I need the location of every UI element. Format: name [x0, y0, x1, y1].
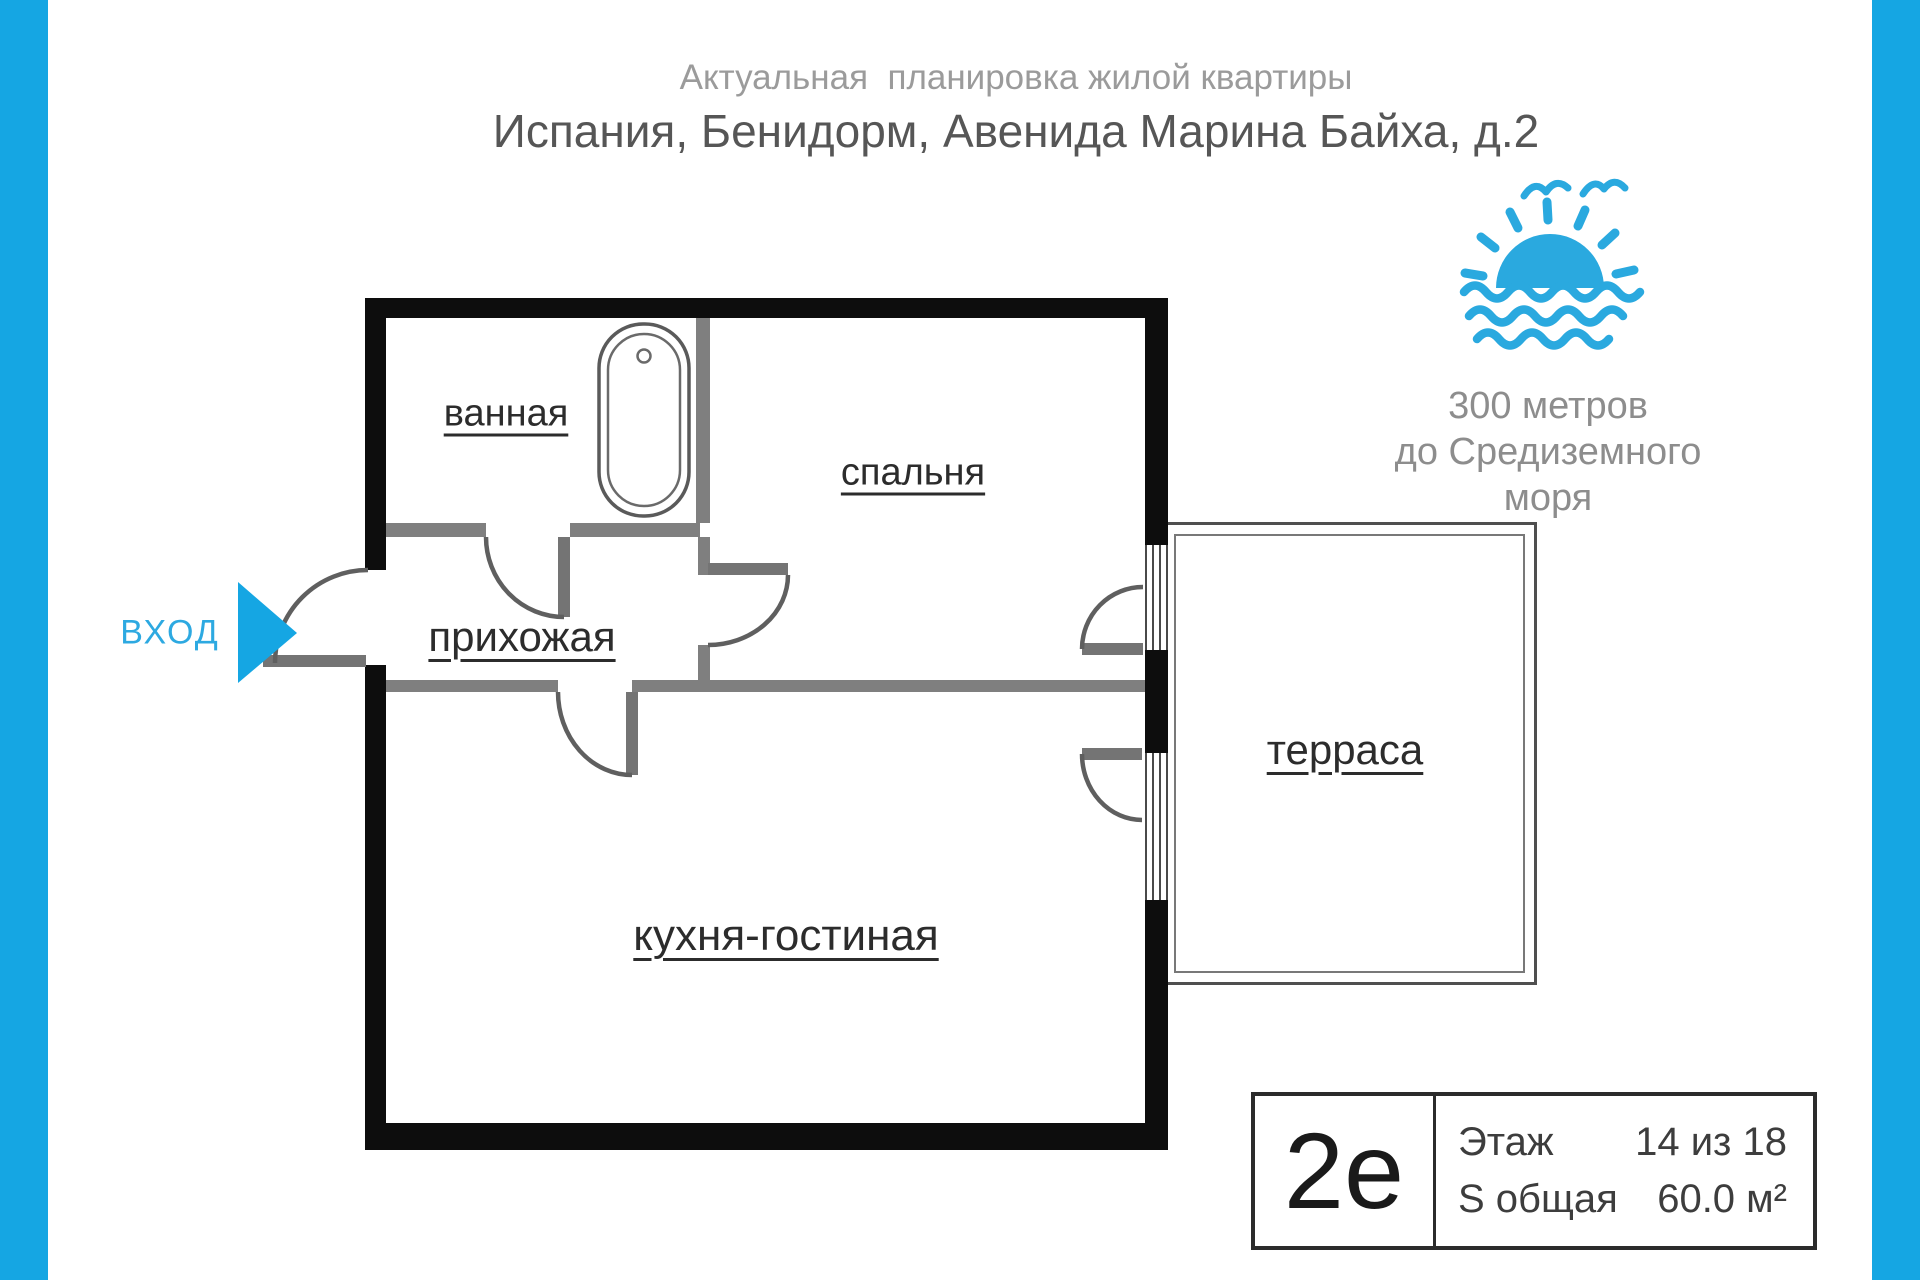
page-subtitle: Актуальная планировка жилой квартиры — [680, 58, 1353, 98]
wall-right-middle — [1145, 650, 1168, 753]
wall-right-upper — [1145, 298, 1168, 545]
entrance-door-leaf — [263, 655, 366, 667]
sun-over-sea-icon — [1464, 182, 1640, 345]
right-accent-bar — [1872, 0, 1920, 1280]
seaside-distance-text: 300 метров до Средиземного моря — [1362, 383, 1734, 521]
bathtub-icon — [599, 324, 689, 516]
bedroom-door-arc — [708, 575, 788, 645]
kitchen-window — [1145, 753, 1168, 900]
kitchen-door-leaf — [626, 692, 638, 775]
area-label: S общая — [1458, 1177, 1618, 1222]
floorplan-page: Актуальная планировка жилой квартиры Исп… — [0, 0, 1920, 1280]
bedroom-wall-lower-segment — [698, 645, 710, 680]
bathroom-wall-right-segment — [570, 523, 700, 537]
kitchen-door-arc — [558, 692, 632, 775]
bathroom-label: ванная — [444, 393, 569, 436]
bathroom-door-arc — [486, 537, 564, 617]
area-value: 60.0 м² — [1657, 1177, 1787, 1222]
entrance-door-arc — [275, 570, 368, 663]
plan-linework — [0, 0, 1920, 1280]
bedroom-window — [1145, 545, 1168, 650]
bedroom-door-leaf — [708, 563, 788, 575]
left-accent-bar — [0, 0, 48, 1280]
wall-left-lower — [365, 665, 386, 1150]
page-title: Испания, Бенидорм, Авенида Марина Байха,… — [493, 104, 1539, 158]
terrace-kitchen-door-leaf — [1082, 748, 1142, 760]
apartment-details-cell: Этаж 14 из 18 S общая 60.0 м² — [1436, 1096, 1813, 1246]
floor-label: Этаж — [1458, 1120, 1554, 1165]
wall-top — [365, 298, 1168, 318]
seaside-line1: 300 метров — [1448, 385, 1648, 427]
bedroom-label: спальня — [841, 452, 985, 495]
floor-value: 14 из 18 — [1635, 1120, 1787, 1165]
hallway-kitchen-wall-left — [386, 680, 558, 692]
terrace-bedroom-door-leaf — [1082, 643, 1143, 655]
terrace-bedroom-door-arc — [1082, 587, 1143, 649]
seaside-line2: до Средиземного моря — [1395, 431, 1702, 519]
kitchen-living-label: кухня-гостиная — [633, 911, 938, 961]
entrance-arrow-icon — [238, 582, 297, 683]
area-row: S общая 60.0 м² — [1458, 1177, 1787, 1222]
wall-left-upper — [365, 298, 386, 570]
hallway-label: прихожая — [428, 613, 615, 661]
apartment-type-cell: 2е — [1255, 1096, 1436, 1246]
apartment-type: 2е — [1284, 1117, 1404, 1225]
floor-row: Этаж 14 из 18 — [1458, 1120, 1787, 1165]
entrance-label: ВХОД — [120, 614, 219, 653]
bathroom-bedroom-divider — [696, 318, 710, 523]
wall-bottom — [365, 1123, 1168, 1150]
bedroom-kitchen-wall — [632, 680, 1145, 692]
bathroom-wall-left-segment — [386, 523, 486, 537]
bathroom-door-leaf — [558, 537, 570, 617]
apartment-info-box: 2е Этаж 14 из 18 S общая 60.0 м² — [1251, 1092, 1817, 1250]
terrace-label: терраса — [1267, 726, 1424, 774]
wall-right-lower — [1145, 900, 1168, 1123]
terrace-kitchen-door-arc — [1082, 754, 1142, 820]
